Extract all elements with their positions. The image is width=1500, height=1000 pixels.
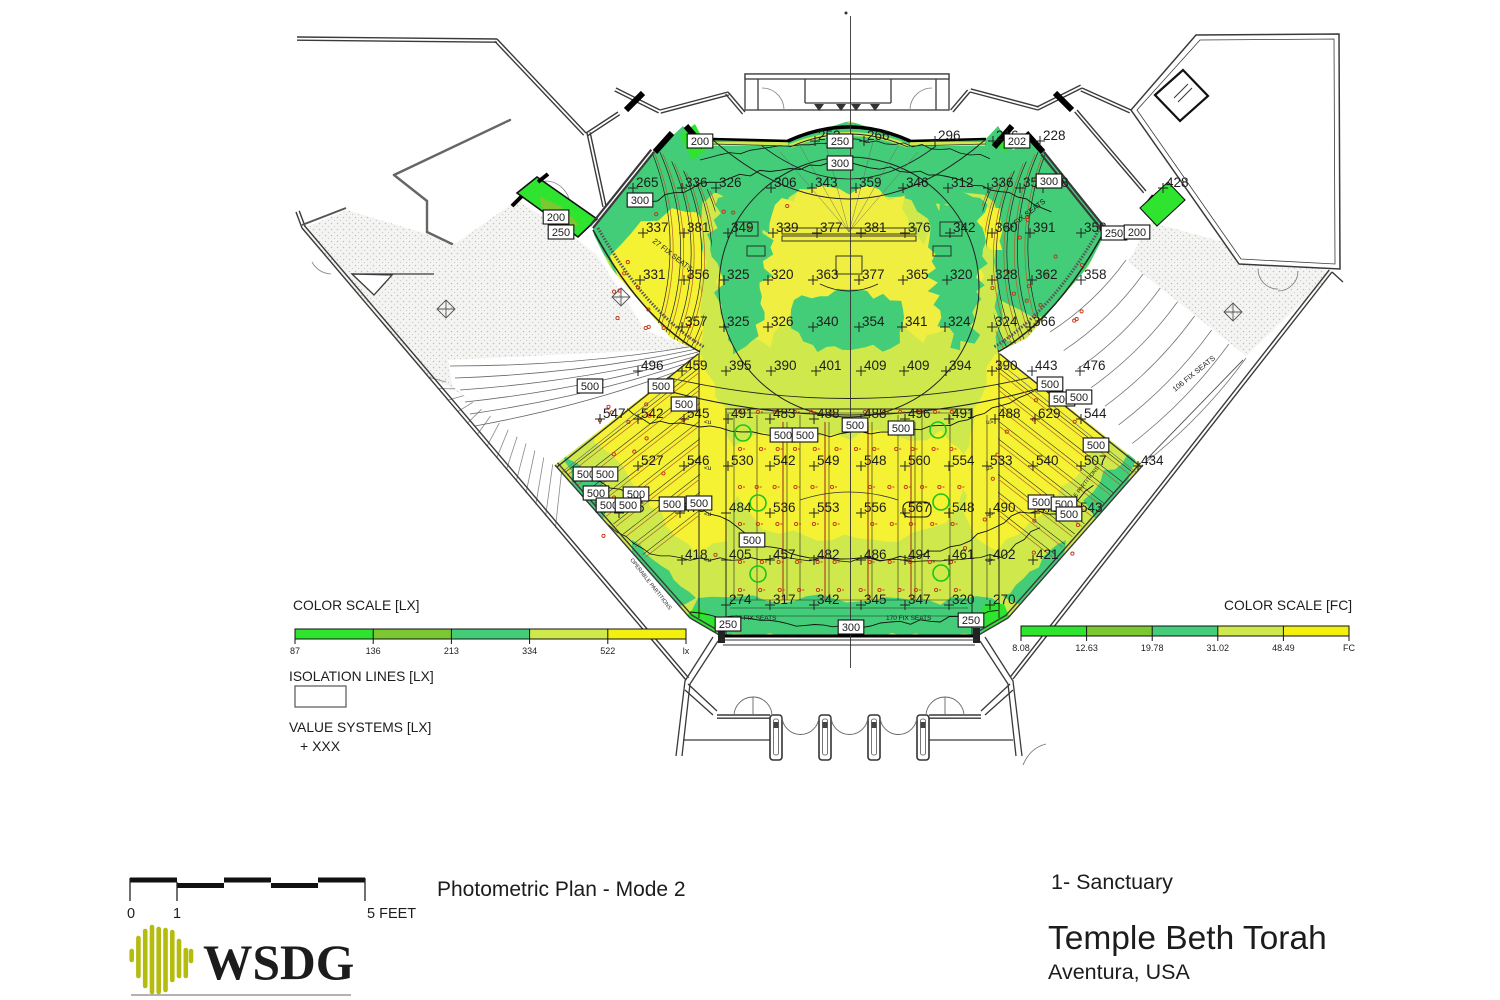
svg-text:FC: FC (1343, 643, 1355, 653)
svg-text:500: 500 (675, 399, 693, 411)
svg-text:337: 337 (646, 220, 669, 235)
svg-text:554: 554 (952, 453, 975, 468)
svg-text:COLOR SCALE [LX]: COLOR SCALE [LX] (293, 598, 420, 613)
svg-text:48.49: 48.49 (1272, 643, 1295, 653)
svg-text:500: 500 (796, 430, 814, 442)
svg-text:270: 270 (993, 592, 1016, 607)
svg-text:325: 325 (727, 267, 750, 282)
svg-text:500: 500 (581, 381, 599, 393)
svg-text:543: 543 (1080, 500, 1103, 515)
svg-text:395: 395 (729, 358, 752, 373)
svg-text:357: 357 (685, 314, 708, 329)
svg-text:363: 363 (816, 267, 839, 282)
svg-text:533: 533 (990, 453, 1013, 468)
svg-text:346: 346 (906, 175, 929, 190)
svg-text:381: 381 (687, 220, 710, 235)
svg-text:476: 476 (1083, 358, 1106, 373)
svg-text:341: 341 (905, 314, 928, 329)
svg-text:COLOR SCALE [FC]: COLOR SCALE [FC] (1224, 598, 1352, 613)
svg-text:428: 428 (1166, 175, 1189, 190)
svg-text:228: 228 (1043, 128, 1066, 143)
svg-text:265: 265 (636, 175, 659, 190)
svg-text:ISOLATION LINES [LX]: ISOLATION LINES [LX] (289, 669, 434, 684)
svg-text:530: 530 (731, 453, 754, 468)
svg-text:317: 317 (773, 592, 796, 607)
svg-text:461: 461 (952, 547, 975, 562)
svg-text:342: 342 (817, 592, 840, 607)
svg-text:390: 390 (774, 358, 797, 373)
svg-text:266: 266 (867, 128, 890, 143)
svg-text:405: 405 (729, 547, 752, 562)
svg-text:390: 390 (995, 358, 1018, 373)
svg-text:331: 331 (643, 267, 666, 282)
svg-text:500: 500 (652, 381, 670, 393)
svg-text:500: 500 (619, 500, 637, 512)
svg-text:491: 491 (952, 406, 975, 421)
svg-text:553: 553 (817, 500, 840, 515)
svg-text:326: 326 (771, 314, 794, 329)
svg-text:500: 500 (774, 430, 792, 442)
svg-text:343: 343 (815, 175, 838, 190)
svg-text:376: 376 (908, 220, 931, 235)
svg-text:496: 496 (908, 406, 931, 421)
svg-text:lx: lx (683, 646, 690, 656)
svg-text:358: 358 (1084, 267, 1107, 282)
svg-text:250: 250 (962, 615, 980, 627)
svg-text:483: 483 (773, 406, 796, 421)
svg-text:325: 325 (727, 314, 750, 329)
svg-text:443: 443 (1035, 358, 1058, 373)
svg-text:556: 556 (864, 500, 887, 515)
svg-text:200: 200 (691, 136, 709, 148)
svg-text:334: 334 (522, 646, 537, 656)
svg-text:402: 402 (993, 547, 1016, 562)
svg-text:540: 540 (1036, 453, 1059, 468)
svg-text:336: 336 (685, 175, 708, 190)
svg-text:500: 500 (846, 420, 864, 432)
svg-text:548: 548 (864, 453, 887, 468)
svg-text:u>: u> (986, 419, 994, 426)
svg-text:434: 434 (1141, 453, 1164, 468)
svg-text:544: 544 (1084, 406, 1107, 421)
svg-text:320: 320 (950, 267, 973, 282)
svg-text:366: 366 (1033, 314, 1056, 329)
svg-text:320: 320 (771, 267, 794, 282)
svg-text:546: 546 (687, 453, 710, 468)
svg-text:500: 500 (1041, 379, 1059, 391)
svg-text:250: 250 (552, 227, 570, 239)
svg-text:306: 306 (774, 175, 797, 190)
svg-text:106 FIX SEATS: 106 FIX SEATS (1171, 354, 1217, 394)
svg-text:1: 1 (173, 906, 181, 922)
svg-text:500: 500 (743, 535, 761, 547)
svg-text:WSDG: WSDG (203, 935, 354, 990)
svg-text:274: 274 (729, 592, 752, 607)
svg-text:629: 629 (1038, 406, 1061, 421)
svg-text:409: 409 (907, 358, 930, 373)
svg-text:507: 507 (1084, 453, 1107, 468)
svg-text:1- Sanctuary: 1- Sanctuary (1051, 870, 1173, 894)
svg-text:12.63: 12.63 (1075, 643, 1098, 653)
svg-text:360: 360 (995, 220, 1018, 235)
svg-text:+ XXX: + XXX (300, 738, 341, 754)
svg-text:542: 542 (641, 406, 664, 421)
svg-text:326: 326 (719, 175, 742, 190)
svg-text:324: 324 (995, 314, 1018, 329)
svg-text:340: 340 (816, 314, 839, 329)
svg-text:Aventura, USA: Aventura, USA (1048, 960, 1190, 984)
svg-text:527: 527 (641, 453, 664, 468)
svg-text:381: 381 (864, 220, 887, 235)
svg-text:542: 542 (773, 453, 796, 468)
svg-text:VALUE SYSTEMS [LX]: VALUE SYSTEMS [LX] (289, 720, 431, 735)
svg-text:336: 336 (991, 175, 1014, 190)
svg-text:296: 296 (938, 128, 961, 143)
svg-text:486: 486 (864, 547, 887, 562)
svg-text:500: 500 (1070, 392, 1088, 404)
svg-text:328: 328 (995, 267, 1018, 282)
svg-text:5 FEET: 5 FEET (367, 906, 416, 922)
svg-text:170 FIX SEATS: 170 FIX SEATS (886, 615, 932, 622)
svg-text:488: 488 (817, 406, 840, 421)
svg-text:345: 345 (864, 592, 887, 607)
svg-text:300: 300 (1040, 176, 1058, 188)
svg-text:342: 342 (953, 220, 976, 235)
svg-text:482: 482 (817, 547, 840, 562)
svg-text:339: 339 (776, 220, 799, 235)
svg-text:500: 500 (596, 469, 614, 481)
svg-text:421: 421 (1036, 547, 1059, 562)
svg-text:394: 394 (949, 358, 972, 373)
svg-text:250: 250 (719, 619, 737, 631)
svg-text:377: 377 (862, 267, 885, 282)
svg-text:250: 250 (831, 136, 849, 148)
svg-text:418: 418 (685, 547, 708, 562)
svg-text:200: 200 (547, 212, 565, 224)
svg-text:356: 356 (687, 267, 710, 282)
svg-text:377: 377 (820, 220, 843, 235)
svg-text:500: 500 (892, 423, 910, 435)
svg-text:359: 359 (859, 175, 882, 190)
svg-text:409: 409 (864, 358, 887, 373)
svg-text:500: 500 (663, 499, 681, 511)
svg-text:459: 459 (685, 358, 708, 373)
svg-text:320: 320 (952, 592, 975, 607)
svg-text:500: 500 (1087, 440, 1105, 452)
svg-text:300: 300 (631, 195, 649, 207)
svg-text:349: 349 (731, 220, 754, 235)
svg-text:312: 312 (951, 175, 974, 190)
svg-text:213: 213 (444, 646, 459, 656)
svg-text:457: 457 (773, 547, 796, 562)
svg-text:Photometric Plan - Mode 2: Photometric Plan - Mode 2 (437, 878, 686, 901)
svg-text:547: 547 (603, 406, 626, 421)
svg-text:536: 536 (773, 500, 796, 515)
svg-text:347: 347 (908, 592, 931, 607)
svg-text:324: 324 (948, 314, 971, 329)
svg-text:19.78: 19.78 (1141, 643, 1164, 653)
svg-text:496: 496 (641, 358, 664, 373)
svg-text:500: 500 (1060, 509, 1078, 521)
svg-text:488: 488 (998, 406, 1021, 421)
svg-text:391: 391 (1033, 220, 1056, 235)
svg-text:0: 0 (127, 906, 135, 922)
svg-text:522: 522 (600, 646, 615, 656)
svg-text:87: 87 (290, 646, 300, 656)
svg-text:549: 549 (817, 453, 840, 468)
svg-text:494: 494 (908, 547, 931, 562)
svg-text:8.08: 8.08 (1012, 643, 1030, 653)
svg-text:560: 560 (908, 453, 931, 468)
svg-text:136: 136 (366, 646, 381, 656)
svg-text:484: 484 (729, 500, 752, 515)
svg-text:365: 365 (906, 267, 929, 282)
svg-text:31.02: 31.02 (1207, 643, 1230, 653)
svg-text:354: 354 (862, 314, 885, 329)
svg-text:362: 362 (1035, 267, 1058, 282)
svg-text:Temple Beth Torah: Temple Beth Torah (1048, 920, 1327, 957)
svg-text:401: 401 (819, 358, 842, 373)
svg-text:491: 491 (731, 406, 754, 421)
svg-text:490: 490 (993, 500, 1016, 515)
svg-text:300: 300 (831, 158, 849, 170)
svg-text:500: 500 (1032, 497, 1050, 509)
svg-text:250: 250 (1105, 228, 1123, 240)
svg-text:500: 500 (690, 498, 708, 510)
svg-text:300: 300 (842, 622, 860, 634)
svg-text:202: 202 (1008, 136, 1026, 148)
svg-text:567: 567 (908, 500, 931, 515)
svg-text:200: 200 (1128, 227, 1146, 239)
svg-text:548: 548 (952, 500, 975, 515)
